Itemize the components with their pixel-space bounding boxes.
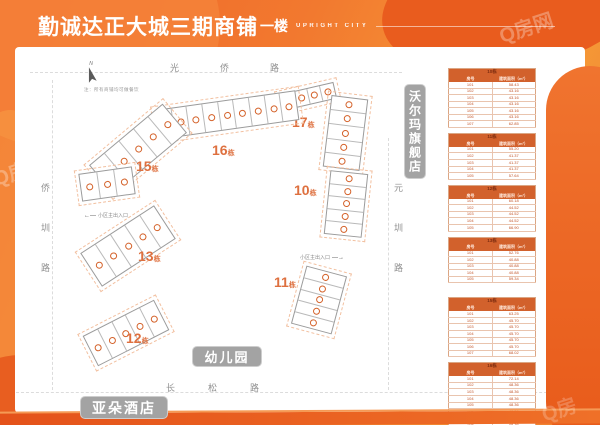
area-table-12栋: 12栋房号建筑面积（m²）10160.1810244.5210344.52104…	[448, 185, 536, 232]
unit-number-marker	[107, 335, 116, 344]
table-cell: 102	[449, 153, 493, 160]
table-cell: 43.16	[492, 101, 536, 108]
unit-number-marker	[123, 241, 133, 251]
area-table-13栋: 13栋房号建筑面积（m²）10152.7610240.8810340.88104…	[448, 237, 536, 284]
atour-hotel-badge: 亚朵酒店	[80, 396, 168, 419]
table-row: 10243.16	[449, 88, 536, 95]
table-cell: 102	[449, 317, 493, 324]
plan-note: 注：所有商铺均可做餐饮	[84, 87, 139, 93]
entrance-marker-left: ←— 小区主出入口	[84, 212, 128, 219]
unit-number-marker	[208, 113, 216, 121]
walmart-flagship-badge: 沃尔玛旗舰店	[404, 84, 426, 179]
table-row: 10348.36	[449, 389, 536, 396]
kindergarten-badge: 幼儿园	[192, 346, 262, 367]
table-cell: 106	[449, 114, 493, 121]
area-table-15栋: 15栋房号建筑面积（m²）10163.2510245.7010345.70104…	[448, 297, 536, 357]
unit-number-marker	[93, 343, 102, 352]
table-cell: 103	[449, 160, 493, 167]
unit-number-marker	[309, 318, 318, 327]
road-label-changsong: 长松路	[166, 381, 292, 394]
table-cell: 43.16	[492, 114, 536, 121]
unit-number-marker	[338, 157, 346, 165]
table-cell: 57.64	[492, 173, 536, 180]
table-row: 10762.85	[449, 121, 536, 128]
unit-number-marker	[315, 296, 324, 305]
entrance-arrow-icon: ←—	[84, 213, 96, 219]
table-cell: 41.37	[492, 160, 536, 167]
table-cell: 105	[449, 225, 493, 232]
unit-number-marker	[119, 156, 129, 166]
table-row: 10441.37	[449, 166, 536, 173]
table-cell: 104	[449, 331, 493, 338]
table-cell: 105	[449, 337, 493, 344]
unit-number-marker	[192, 115, 200, 123]
table-cell: 40.88	[492, 270, 536, 277]
road-line-left	[52, 80, 53, 390]
table-cell: 66.90	[492, 225, 536, 232]
table-cell: 104	[449, 270, 493, 277]
table-row: 10768.02	[449, 350, 536, 357]
building-10-label: 10栋	[294, 182, 317, 200]
table-row: 10343.16	[449, 95, 536, 102]
building-13-label: 13栋	[138, 248, 161, 266]
unit-number-marker	[133, 144, 143, 154]
table-building-name: 11栋	[449, 133, 536, 140]
table-cell: 43.16	[492, 95, 536, 102]
table-cell: 44.52	[492, 218, 536, 225]
table-cell: 103	[449, 324, 493, 331]
unit-number-marker	[162, 120, 172, 130]
unit-number-marker	[149, 314, 158, 323]
unit-number-marker	[103, 180, 111, 188]
table-row: 10248.36	[449, 382, 536, 389]
unit-number-marker	[297, 94, 305, 102]
table-row: 10440.88	[449, 270, 536, 277]
unit-number-marker	[94, 260, 104, 270]
table-cell: 104	[449, 101, 493, 108]
table-row: 10340.88	[449, 263, 536, 270]
area-table-11栋: 11栋房号建筑面积（m²）10155.2010241.3710341.37104…	[448, 133, 536, 180]
table-cell: 44.52	[492, 211, 536, 218]
table-cell: 40.88	[492, 263, 536, 270]
unit-number-marker	[109, 251, 119, 261]
unit-number-marker	[270, 105, 278, 113]
unit-number-marker	[86, 183, 94, 191]
table-row: 10448.36	[449, 396, 536, 403]
table-cell: 103	[449, 95, 493, 102]
unit-number-marker	[340, 225, 348, 233]
unit-number-marker	[340, 143, 348, 151]
table-cell: 59.34	[492, 276, 536, 283]
table-row: 10345.70	[449, 324, 536, 331]
unit-number-marker	[254, 107, 262, 115]
building-12-label: 12栋	[126, 330, 149, 348]
table-cell: 102	[449, 382, 493, 389]
table-cell: 43.16	[492, 88, 536, 95]
area-tables: 10栋房号建筑面积（m²）10158.4310243.1610343.16104…	[448, 68, 536, 425]
table-cell: 62.85	[492, 121, 536, 128]
table-cell: 107	[449, 350, 493, 357]
unit-number-marker	[223, 111, 231, 119]
table-row: 10545.70	[449, 337, 536, 344]
table-cell: 103	[449, 389, 493, 396]
table-cell: 41.37	[492, 166, 536, 173]
table-cell: 102	[449, 205, 493, 212]
shop-unit	[114, 168, 134, 196]
building-15-block	[78, 166, 135, 201]
table-cell: 48.36	[492, 402, 536, 409]
table-cell: 45.70	[492, 317, 536, 324]
page-header: 勤诚达正大城三期商铺 一楼 UPRIGHT CITY	[38, 11, 555, 41]
unit-number-marker	[312, 307, 321, 316]
table-row: 10559.34	[449, 276, 536, 283]
entrance-label: 小区主出入口	[98, 212, 128, 219]
table-cell: 104	[449, 166, 493, 173]
table-cell: 105	[449, 173, 493, 180]
brochure-page: 勤诚达正大城三期商铺 一楼 UPRIGHT CITY 光侨路 侨圳路 元圳路 长…	[0, 0, 600, 425]
table-row: 10344.52	[449, 211, 536, 218]
table-row: 10543.16	[449, 108, 536, 115]
unit-number-marker	[343, 115, 351, 123]
unit-number-marker	[148, 132, 158, 142]
table-cell: 48.36	[492, 396, 536, 403]
table-cell: 45.70	[492, 337, 536, 344]
table-row: 10241.37	[449, 153, 536, 160]
table-cell: 68.02	[492, 350, 536, 357]
unit-number-marker	[342, 129, 350, 137]
table-cell: 107	[449, 121, 493, 128]
table-row: 10548.36	[449, 402, 536, 409]
shop-unit	[325, 221, 362, 236]
table-row: 10643.16	[449, 114, 536, 121]
building-17-block	[323, 95, 368, 171]
table-cell: 40.88	[492, 257, 536, 264]
unit-number-marker	[318, 284, 327, 293]
floor-label: 一楼	[260, 16, 288, 36]
unit-number-marker	[342, 200, 350, 208]
table-cell: 41.37	[492, 153, 536, 160]
road-label-yuanzhen: 元圳路	[392, 183, 405, 303]
page-subtitle: UPRIGHT CITY	[296, 23, 368, 29]
table-row: 10443.16	[449, 101, 536, 108]
unit-number-marker	[121, 178, 129, 186]
unit-number-marker	[341, 213, 349, 221]
building-11-label: 11栋	[274, 274, 296, 292]
table-cell: 102	[449, 88, 493, 95]
table-cell: 104	[449, 218, 493, 225]
site-plan: 光侨路 侨圳路 元圳路 长松路 N 注：所有商铺均可做餐饮 ←— 小区主出入口 …	[0, 0, 600, 425]
building-16-label: 16栋	[212, 142, 235, 160]
shop-unit	[280, 91, 298, 121]
unit-number-marker	[345, 101, 353, 109]
unit-number-marker	[311, 91, 319, 99]
north-arrow-icon: N	[86, 62, 96, 83]
table-cell: 43.16	[492, 108, 536, 115]
page-title: 勤诚达正大城三期商铺	[38, 11, 258, 41]
table-building-name: 10栋	[449, 69, 536, 76]
unit-number-marker	[285, 102, 293, 110]
table-cell: 45.70	[492, 331, 536, 338]
unit-number-marker	[343, 188, 351, 196]
building-11-block	[291, 266, 347, 335]
unit-number-marker	[239, 109, 247, 117]
table-row: 10245.70	[449, 317, 536, 324]
table-cell: 103	[449, 263, 493, 270]
table-cell: 103	[449, 211, 493, 218]
table-row: 10444.52	[449, 218, 536, 225]
table-row: 10240.88	[449, 257, 536, 264]
table-cell: 48.36	[492, 382, 536, 389]
table-row: 10341.37	[449, 160, 536, 167]
table-row: 10566.90	[449, 225, 536, 232]
entrance-label: 小区主出入口	[300, 254, 330, 261]
area-table-10栋: 10栋房号建筑面积（m²）10158.4310243.1610343.16104…	[448, 68, 536, 128]
road-label-qiaozhen: 侨圳路	[39, 183, 52, 303]
unit-number-marker	[138, 232, 148, 242]
table-row: 10557.64	[449, 173, 536, 180]
entrance-marker-right: 小区主出入口 —→	[300, 254, 344, 261]
unit-number-marker	[321, 273, 330, 282]
unit-number-marker	[345, 175, 353, 183]
table-cell: 105	[449, 276, 493, 283]
building-10-block	[324, 170, 368, 238]
table-row: 10645.70	[449, 344, 536, 351]
road-line-right	[388, 138, 389, 390]
entrance-arrow-icon: —→	[332, 255, 344, 261]
table-cell: 105	[449, 402, 493, 409]
table-row: 10445.70	[449, 331, 536, 338]
road-label-guangqiao: 光侨路	[170, 61, 320, 74]
table-cell: 45.70	[492, 344, 536, 351]
table-row: 10244.52	[449, 205, 536, 212]
table-cell: 105	[449, 108, 493, 115]
table-cell: 45.70	[492, 324, 536, 331]
unit-number-marker	[152, 222, 162, 232]
table-cell: 44.52	[492, 205, 536, 212]
table-cell: 102	[449, 257, 493, 264]
building-15-label: 15栋	[136, 158, 159, 176]
table-cell: 104	[449, 396, 493, 403]
table-building-name: 12栋	[449, 185, 536, 192]
table-cell: 48.36	[492, 389, 536, 396]
table-cell: 106	[449, 344, 493, 351]
background-blob-right	[546, 66, 600, 425]
